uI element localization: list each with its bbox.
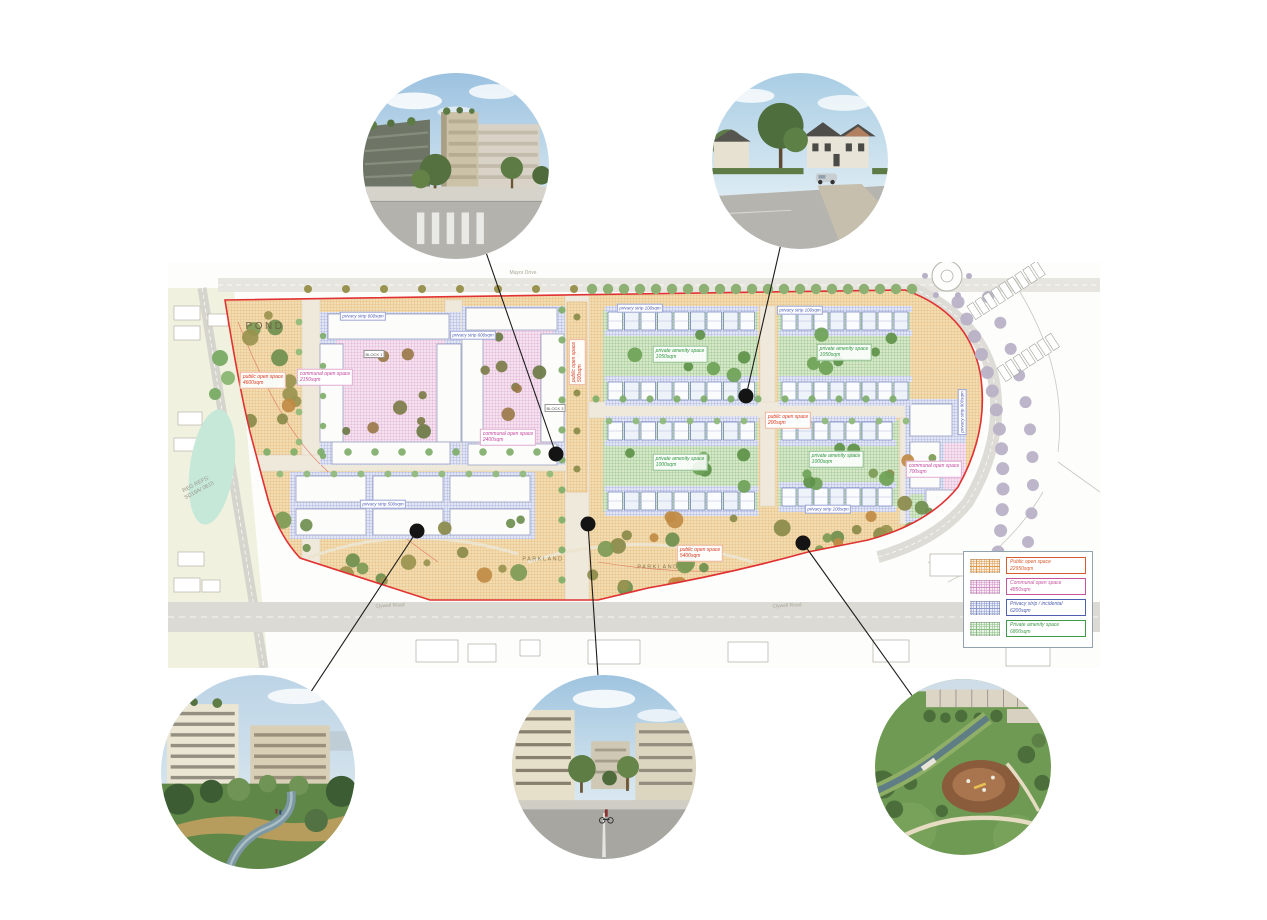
callout-photo-apartment-avenue bbox=[512, 675, 696, 859]
legend-swatch bbox=[970, 580, 1000, 594]
apartment-rows-south-west bbox=[290, 472, 535, 539]
legend-label: Private amenity space6800sqm bbox=[1006, 620, 1086, 637]
legend-item: Private amenity space6800sqm bbox=[970, 621, 1086, 636]
legend-item: Public open space22950sqm bbox=[970, 558, 1086, 573]
callout-photo-housing-street bbox=[712, 73, 888, 249]
legend-label: Privacy strip / incidental6200sqm bbox=[1006, 599, 1086, 616]
legend-label: Public open space22950sqm bbox=[1006, 557, 1086, 574]
legend-item: Privacy strip / incidental6200sqm bbox=[970, 600, 1086, 615]
legend-swatch bbox=[970, 622, 1000, 636]
legend-item: Communal open space4850sqm bbox=[970, 579, 1086, 594]
legend-swatch bbox=[970, 559, 1000, 573]
legend-swatch bbox=[970, 601, 1000, 615]
callout-photo-riverside-park bbox=[161, 675, 355, 869]
legend-label: Communal open space4850sqm bbox=[1006, 578, 1086, 595]
callout-photo-parkland-playground bbox=[875, 679, 1051, 855]
masterplan-page: PONDPARKLANDPARKLANDpublic open space460… bbox=[0, 0, 1267, 920]
context-roundabout bbox=[932, 262, 962, 291]
masterplan-svg bbox=[168, 262, 1100, 668]
callout-photo-apartments-street bbox=[363, 73, 549, 259]
open-space-legend: Public open space22950sqmCommunal open s… bbox=[963, 551, 1093, 648]
apartment-block-a bbox=[320, 312, 461, 465]
masterplan-drawing bbox=[168, 262, 1100, 668]
